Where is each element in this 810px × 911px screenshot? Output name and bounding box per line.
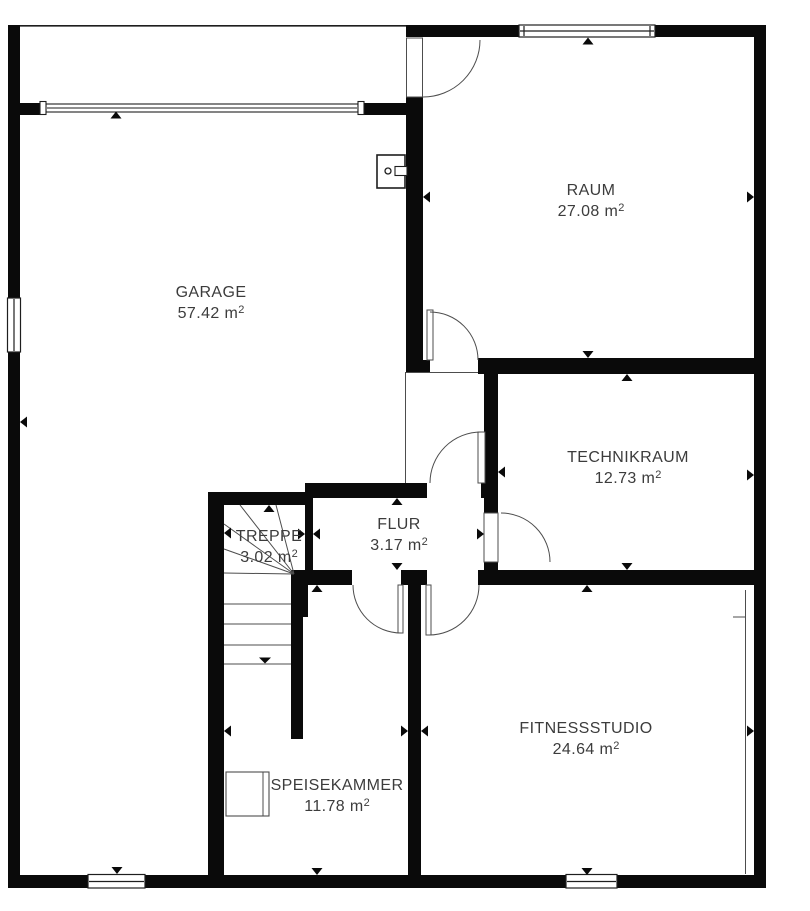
marker-raum-right-icon: [747, 192, 754, 203]
stair-straight-treads: [224, 604, 291, 664]
wall-top-right-segment: [654, 25, 766, 37]
window-garage-west: [8, 298, 21, 352]
door-flur-to-speisekammer: [353, 585, 403, 633]
marker-garage-bottom-icon: [112, 867, 123, 874]
marker-speisekammer-right-icon: [401, 726, 408, 737]
door-leaf: [398, 585, 403, 633]
wall-left-upper: [8, 25, 20, 298]
wall-treppe-flur: [305, 498, 313, 570]
floor-plan: GARAGE 57.42 m2 RAUM 27.08 m2 TECHNIKRAU…: [0, 0, 810, 911]
door-swing-arc: [501, 513, 550, 562]
wall-garage-raum-foot: [406, 360, 430, 372]
wall-box-fixture: [377, 155, 407, 188]
marker-hall-top-icon: [312, 585, 323, 592]
marker-technikraum-top-icon: [622, 374, 633, 381]
marker-raum-bottom-icon: [583, 351, 594, 358]
garage-door-cap-right: [358, 102, 364, 115]
wall-flur-south-seg1: [291, 570, 352, 585]
door-swing-arc: [353, 585, 401, 633]
marker-treppe-left-icon: [224, 528, 231, 539]
wall-speisekammer-fitness: [408, 585, 421, 888]
wall-bottom-seg1: [8, 875, 88, 888]
door-swing-arc: [429, 585, 479, 635]
marker-technikraum-right-icon: [747, 470, 754, 481]
door-leaf: [426, 585, 431, 635]
door-flur-to-vestibule: [430, 432, 485, 483]
marker-treppe-right-icon: [298, 529, 305, 540]
door-leaf: [407, 38, 423, 97]
garage-front-stub-left: [20, 103, 40, 115]
window-raum-north: [519, 25, 655, 37]
marker-technikraum-bottom-icon: [622, 563, 633, 570]
marker-garage-top-icon: [111, 112, 122, 119]
garage-front-stub-right: [364, 103, 406, 115]
wall-top-left-segment: [406, 25, 522, 37]
marker-technikraum-left-icon: [498, 467, 505, 478]
door-flur-to-fitnessstudio: [426, 585, 479, 635]
marker-flur-left-icon: [313, 529, 320, 540]
windows: [8, 25, 656, 888]
wall-bottom-seg3: [617, 875, 766, 888]
wall-left-lower: [8, 352, 20, 888]
door-swing-arc: [430, 432, 481, 483]
boundary-lines: [406, 372, 746, 874]
wall-flur-south-seg2: [401, 570, 427, 585]
marker-speisekammer-left-icon: [224, 726, 231, 737]
wall-technikraum-south: [478, 570, 766, 585]
wall-raum-south: [478, 358, 766, 374]
window-garage-south: [88, 875, 145, 889]
door-swing-arc: [430, 312, 478, 360]
garage-door: [40, 102, 364, 115]
marker-fitness-left-icon: [421, 726, 428, 737]
door-swing-arc: [423, 40, 480, 97]
door-leaf: [427, 310, 433, 360]
door-leaf: [484, 513, 498, 562]
marker-flur-bottom-icon: [392, 563, 403, 570]
wall-flur-north: [305, 483, 427, 498]
garage-door-cap-left: [40, 102, 46, 115]
door-garage-to-raum: [407, 38, 481, 97]
staircase: [224, 505, 294, 664]
stair-winder-treads: [224, 505, 294, 574]
marker-flur-right-icon: [477, 529, 484, 540]
door-flur-to-technikraum: [484, 513, 550, 562]
marker-raum-left-icon: [423, 192, 430, 203]
marker-treppe-top-icon: [264, 505, 275, 512]
marker-raum-top-icon: [583, 38, 594, 45]
window-fitness-south: [566, 875, 617, 889]
marker-fitness-top-icon: [582, 585, 593, 592]
wall-stair-east-notch: [303, 585, 308, 617]
stair-direction-arrow-icon: [259, 658, 271, 664]
floor-plan-drawing: [0, 0, 810, 911]
marker-flur-top-icon: [392, 498, 403, 505]
marker-speisekammer-bottom-icon: [312, 868, 323, 875]
wall-garage-raum: [406, 97, 423, 372]
wall-flur-north-stub: [481, 483, 498, 498]
marker-garage-left-icon: [20, 417, 27, 428]
speisekammer-cabinet: [226, 772, 269, 816]
marker-fitness-right-icon: [747, 726, 754, 737]
wall-garage-east-inner: [208, 492, 224, 888]
doors: [353, 38, 550, 635]
door-vestibule-to-raum: [427, 310, 478, 360]
door-leaf: [478, 432, 485, 483]
wall-stair-east: [291, 585, 303, 739]
interior-walls: [208, 97, 766, 888]
wall-right: [754, 25, 766, 888]
